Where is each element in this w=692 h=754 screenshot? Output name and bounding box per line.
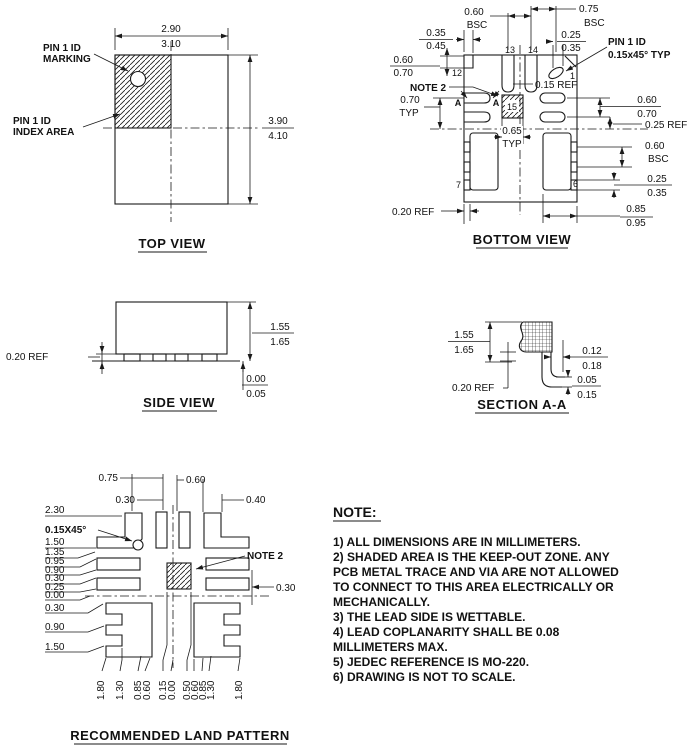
dim-pad-edge-min: 0.85 [626, 204, 646, 215]
dim-top-pitch-b-val: 0.75 [579, 4, 599, 15]
land-pad-left-1 [97, 558, 140, 570]
side-pad-2 [153, 354, 166, 361]
land-left-dim-0: 2.30 [45, 505, 65, 516]
dim-lead-w-min: 0.12 [582, 346, 602, 357]
land-pattern: 0.75 0.30 0.60 0.40 0.15X45° NOTE 2 0.30… [45, 473, 296, 744]
pin7-label: 7 [456, 180, 461, 190]
left-slot-1 [464, 93, 490, 103]
dim-standoff-min: 0.00 [246, 374, 266, 385]
note-line-5: MECHANICALLY. [333, 595, 430, 609]
dim-side-lead-t: 0.20 REF [6, 352, 48, 363]
section-a-a: 1.55 1.65 0.12 0.18 0.05 0.15 0.20 REF S… [448, 322, 608, 413]
note-line-8: MILLIMETERS MAX. [333, 640, 448, 654]
note-line-1: 1) ALL DIMENSIONS ARE IN MILLIMETERS. [333, 535, 581, 549]
land-dim-040: 0.40 [246, 495, 266, 506]
dim-pad-gap: 0.15 REF [535, 80, 577, 91]
pin1-index-area-hatch [115, 55, 171, 128]
pin1-marking-label-1: PIN 1 ID [43, 43, 81, 54]
land-chamfer-circle [133, 540, 143, 550]
note-line-10: 6) DRAWING IS NOT TO SCALE. [333, 670, 515, 684]
land-bottom-dim-10: 1.80 [234, 680, 245, 700]
section-marker-a-right: A [493, 98, 500, 108]
dim-epad-val: 0.65 [502, 126, 522, 137]
land-bottom-dim-3: 0.60 [142, 680, 153, 700]
dim-epad-unit: TYP [502, 139, 522, 150]
dim-foot-min: 0.05 [577, 375, 597, 386]
left-pad-bump-1 [464, 142, 470, 152]
land-dim-030-top: 0.30 [116, 495, 136, 506]
dim-chamfer-w-min: 0.25 [561, 30, 581, 41]
dim-standoff-max: 0.05 [246, 389, 266, 400]
bottom-view: 15 A A 12 1 7 6 13 14 0.60 BSC 0.75 [390, 4, 687, 248]
land-dim-075: 0.75 [99, 473, 119, 484]
dim-chamfer-w-max: 0.35 [561, 43, 581, 54]
land-keepout-hatch [167, 563, 191, 589]
land-left-dim-8: 0.30 [45, 603, 65, 614]
dim-bump-max: 0.35 [647, 188, 667, 199]
top-view-title: TOP VIEW [138, 236, 205, 251]
dim-top-height-max: 4.10 [268, 131, 288, 142]
dim-top-pitch-a-val: 0.60 [464, 7, 484, 18]
dim-bump-pitch-val: 0.60 [645, 141, 665, 152]
pin12-label: 12 [452, 68, 462, 78]
dim-sec-body-max: 1.65 [454, 345, 474, 356]
land-comb-right [194, 603, 240, 657]
note-line-6: 3) THE LEAD SIDE IS WETTABLE. [333, 610, 525, 624]
dim-sec-lead-t: 0.20 REF [452, 383, 494, 394]
land-pad-right-1 [206, 558, 249, 570]
section-marker-a-left: A [455, 98, 462, 108]
land-bottom-dim-5: 0.00 [167, 680, 178, 700]
note-line-9: 5) JEDEC REFERENCE IS MO-220. [333, 655, 529, 669]
land-pad-top-mid-1 [156, 512, 167, 548]
land-dim-030-right: 0.30 [276, 583, 296, 594]
note-line-2: 2) SHADED AREA IS THE KEEP-OUT ZONE. ANY [333, 550, 610, 564]
land-note2-callout: NOTE 2 [247, 551, 284, 562]
dim-center-ref: 0.25 REF [645, 120, 687, 131]
dim-notch-w-max: 0.45 [426, 41, 446, 52]
dim-foot-max: 0.15 [577, 390, 597, 401]
land-pad-top-mid-2 [179, 512, 190, 548]
left-power-pad [470, 133, 498, 190]
side-view: 1.55 1.65 0.00 0.05 0.20 REF SIDE VIEW [6, 302, 294, 411]
land-left-dim-7: 0.00 [45, 590, 65, 601]
side-view-body [116, 302, 227, 354]
side-pad-4 [202, 354, 217, 361]
dim-side-body-min: 1.55 [270, 322, 290, 333]
dim-side-body-max: 1.65 [270, 337, 290, 348]
dim-bump-min: 0.25 [647, 174, 667, 185]
dim-notch-w-min: 0.35 [426, 28, 446, 39]
land-chamfer-callout: 0.15X45° [45, 525, 86, 536]
pin6-label: 6 [573, 179, 578, 189]
side-pad-3 [175, 354, 188, 361]
bottom-view-title: BOTTOM VIEW [473, 232, 572, 247]
pin15-label: 15 [507, 102, 517, 112]
land-left-dim-9: 0.90 [45, 622, 65, 633]
pin14-label: 14 [528, 45, 538, 55]
right-slot-2 [540, 112, 565, 122]
pin13-slot [502, 55, 514, 92]
left-pad-bump-3 [464, 180, 470, 190]
land-pad-right-2 [206, 578, 249, 590]
section-body [519, 322, 552, 352]
left-slot-2 [464, 112, 490, 122]
dim-top-height-min: 3.90 [268, 116, 288, 127]
dim-bump-pitch-unit: BSC [648, 154, 669, 165]
notes-heading: NOTE: [333, 504, 377, 520]
dim-notch-h-min: 0.60 [394, 55, 414, 66]
right-power-pad [543, 133, 571, 190]
dim-sec-body-min: 1.55 [454, 330, 474, 341]
dim-notch-h-max: 0.70 [394, 68, 414, 79]
pin1-id-callout-1: PIN 1 ID [608, 37, 646, 48]
pin13-label: 13 [505, 45, 515, 55]
side-pad-1 [124, 354, 140, 361]
right-slot-1 [540, 93, 565, 103]
notes-block: NOTE: 1) ALL DIMENSIONS ARE IN MILLIMETE… [333, 504, 619, 684]
dim-top-width-max: 3.10 [161, 39, 181, 50]
dim-lead-w-max: 0.18 [582, 361, 602, 372]
pin1-chamfer-line [565, 56, 576, 67]
right-pad-bump-1 [571, 142, 577, 152]
land-bottom-dim-0: 1.80 [96, 680, 107, 700]
dim-corner-ref: 0.20 REF [392, 207, 434, 218]
note-line-4: TO CONNECT TO THIS AREA ELECTRICALLY OR [333, 580, 614, 594]
land-pattern-title: RECOMMENDED LAND PATTERN [70, 728, 290, 743]
pin1-marking-circle [131, 72, 146, 87]
land-comb-left [106, 603, 152, 657]
note2-callout: NOTE 2 [410, 83, 447, 94]
pin12-corner-notch [464, 55, 473, 68]
land-pad-top-right [204, 513, 249, 548]
dim-slot-min: 0.60 [637, 95, 657, 106]
pin1-chamfer-mark [547, 65, 565, 81]
side-view-title: SIDE VIEW [143, 395, 215, 410]
pin1-marking-label-2: MARKING [43, 54, 91, 65]
land-left-dim-10: 1.50 [45, 642, 65, 653]
dim-row-pitch-unit: TYP [399, 108, 419, 119]
dim-top-width-min: 2.90 [161, 24, 181, 35]
dim-row-pitch-val: 0.70 [400, 95, 420, 106]
note-line-7: 4) LEAD COPLANARITY SHALL BE 0.08 [333, 625, 560, 639]
mechanical-drawing: 2.90 3.10 3.90 4.10 PIN 1 ID MARKING PIN… [0, 0, 692, 754]
pin1-id-callout-2: 0.15x45° TYP [608, 50, 671, 61]
dim-pad-edge-max: 0.95 [626, 218, 646, 229]
dim-slot-max: 0.70 [637, 109, 657, 120]
dim-top-pitch-a-unit: BSC [467, 20, 488, 31]
top-view: 2.90 3.10 3.90 4.10 PIN 1 ID MARKING PIN… [13, 24, 294, 252]
package-drawing-page: 2.90 3.10 3.90 4.10 PIN 1 ID MARKING PIN… [0, 0, 692, 754]
land-pad-left-2 [97, 578, 140, 590]
left-pad-bump-2 [464, 162, 470, 172]
land-bottom-dim-1: 1.30 [115, 680, 126, 700]
pin1-index-label-2: INDEX AREA [13, 127, 74, 138]
section-title: SECTION A-A [477, 397, 567, 412]
dim-top-pitch-b-unit: BSC [584, 18, 605, 29]
right-pad-bump-2 [571, 162, 577, 172]
land-bottom-dim-9: 1.30 [206, 680, 217, 700]
note-line-3: PCB METAL TRACE AND VIA ARE NOT ALLOWED [333, 565, 619, 579]
pin1-index-label-1: PIN 1 ID [13, 116, 51, 127]
